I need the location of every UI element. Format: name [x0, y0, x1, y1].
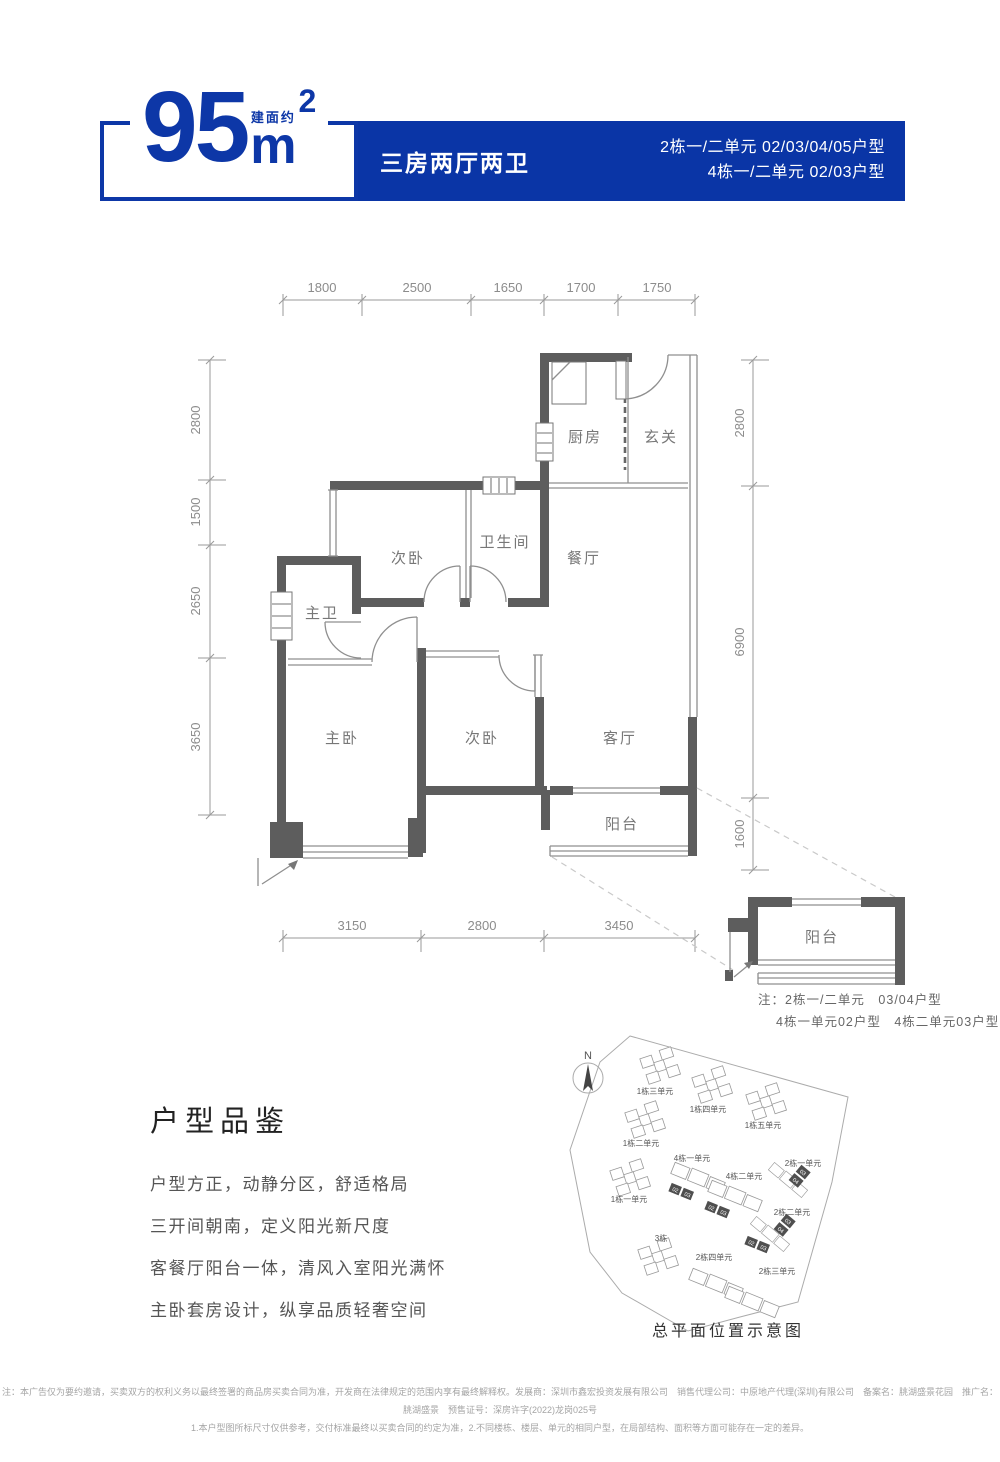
room-label-bedroom3: 次卧: [465, 730, 499, 747]
building-label: 4栋二单元: [726, 1171, 762, 1181]
site-plan: N 02 03 02: [570, 1036, 848, 1340]
footer-disclaimer: 注：本广告仅为要约邀请，买卖双方的权利义务以最终签署的商品房买卖合同为准，开发商…: [0, 1383, 1000, 1437]
detail-note-line-2: 4栋一单元02户型 4栋二单元03户型: [776, 1014, 999, 1029]
room-label-bathroom: 卫生间: [479, 534, 530, 551]
building-label: 2栋二单元: [774, 1207, 810, 1217]
feature-line-1: 户型方正，动静分区，舒适格局: [150, 1170, 446, 1195]
building-label: 2栋三单元: [759, 1266, 795, 1276]
dim-left-3: 2650: [188, 587, 203, 616]
flyer-page: 95 建面约 m 2 三房两厅两卫 2栋一/二单元 02/03/04/05户型 …: [0, 0, 1000, 1462]
building-label: 2栋一单元: [785, 1158, 821, 1168]
feature-line-4: 主卧套房设计，纵享品质轻奢空间: [150, 1296, 446, 1321]
dimensions-right: 2800 6900 1600: [732, 356, 769, 874]
dim-left-2: 1500: [188, 498, 203, 527]
dimensions-bottom: 3150 2800 3450: [279, 918, 699, 952]
room-label-balcony: 阳台: [605, 816, 639, 833]
dim-top-5: 1750: [643, 280, 672, 295]
building-label: 3栋: [655, 1233, 667, 1243]
site-plan-caption: 总平面位置示意图: [652, 1321, 804, 1340]
dim-bottom-1: 3150: [338, 918, 367, 933]
leader-lines: [552, 788, 895, 970]
room-label-bedroom2: 次卧: [391, 550, 425, 567]
room-label-kitchen: 厨房: [568, 429, 602, 446]
building-label: 1栋二单元: [623, 1138, 659, 1148]
building-label: 1栋三单元: [637, 1086, 673, 1096]
dim-top-4: 1700: [567, 280, 596, 295]
building-label: 1栋一单元: [611, 1194, 647, 1204]
building-label: 1栋五单元: [745, 1120, 781, 1130]
room-label-entry: 玄关: [644, 429, 678, 446]
dim-top-2: 2500: [403, 280, 432, 295]
building-label: 1栋四单元: [690, 1104, 726, 1114]
room-label-master-bedroom: 主卧: [325, 730, 359, 747]
room-label-master-bath: 主卫: [305, 605, 339, 622]
room-label-living: 客厅: [603, 730, 637, 747]
building-label: 2栋四单元: [696, 1252, 732, 1262]
dim-right-2: 6900: [732, 628, 747, 657]
features-section: 户型品鉴 户型方正，动静分区，舒适格局 三开间朝南，定义阳光新尺度 客餐厅阳台一…: [150, 1098, 446, 1338]
dimensions-top: 1800 2500 1650 1700 1750: [279, 280, 699, 316]
dimensions-left: 2800 1500 2650 3650: [188, 356, 226, 819]
building-label: 4栋一单元: [674, 1153, 710, 1163]
dim-top-1: 1800: [308, 280, 337, 295]
dim-bottom-3: 3450: [605, 918, 634, 933]
detail-note-line-1: 注：2栋一/二单元 03/04户型: [758, 992, 942, 1007]
feature-line-3: 客餐厅阳台一体，清风入室阳光满怀: [150, 1254, 446, 1279]
dim-right-3: 1600: [732, 820, 747, 849]
compass-icon: N: [573, 1050, 603, 1093]
balcony-detail: 阳台 注：2栋一/二单元 03/04户型 4栋一单元02户型 4栋二单元03户型: [725, 897, 999, 1029]
room-label-dining: 餐厅: [567, 550, 601, 567]
dim-bottom-2: 2800: [468, 918, 497, 933]
dim-left-4: 3650: [188, 723, 203, 752]
dim-top-3: 1650: [494, 280, 523, 295]
footer-line-1: 注：本广告仅为要约邀请，买卖双方的权利义务以最终签署的商品房买卖合同为准，开发商…: [0, 1383, 1000, 1419]
dim-right-1: 2800: [732, 409, 747, 438]
dim-left-1: 2800: [188, 406, 203, 435]
compass-n-label: N: [584, 1050, 592, 1062]
features-title: 户型品鉴: [150, 1098, 446, 1140]
footer-line-2: 1.本户型图所标尺寸仅供参考，交付标准最终以买卖合同的约定为准，2.不同楼栋、楼…: [0, 1419, 1000, 1437]
feature-line-2: 三开间朝南，定义阳光新尺度: [150, 1212, 446, 1237]
detail-balcony-label: 阳台: [805, 929, 839, 946]
floor-plan-doors: [325, 355, 668, 691]
